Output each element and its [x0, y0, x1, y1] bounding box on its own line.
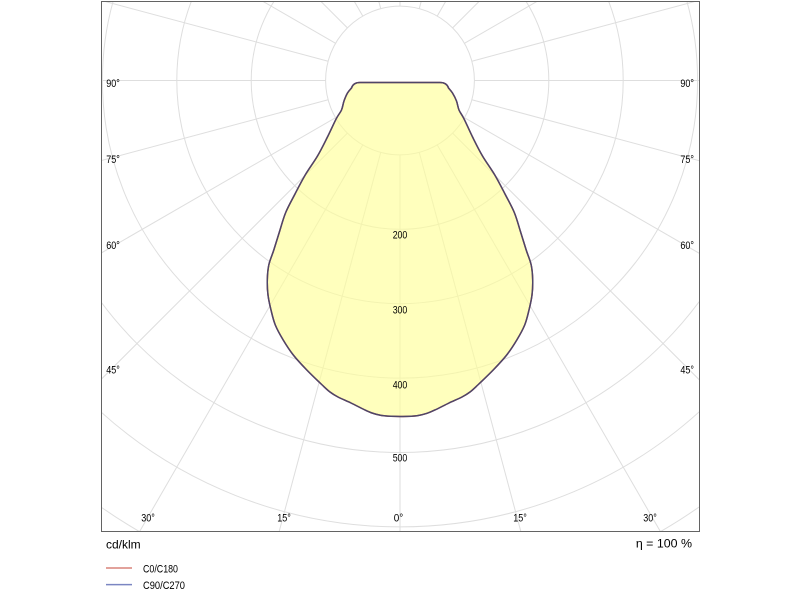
svg-text:cd/klm: cd/klm — [106, 538, 141, 552]
svg-text:200: 200 — [393, 230, 408, 242]
svg-text:90°: 90° — [680, 78, 694, 90]
svg-text:400: 400 — [393, 380, 408, 392]
svg-text:30°: 30° — [643, 512, 657, 524]
svg-text:30°: 30° — [141, 512, 155, 524]
svg-text:C0/C180: C0/C180 — [143, 564, 178, 576]
svg-text:45°: 45° — [680, 364, 694, 376]
svg-text:C90/C270: C90/C270 — [143, 580, 185, 592]
svg-text:45°: 45° — [106, 364, 120, 376]
svg-text:75°: 75° — [680, 154, 694, 166]
svg-text:90°: 90° — [106, 78, 120, 90]
svg-text:0°: 0° — [394, 512, 404, 524]
svg-text:60°: 60° — [106, 240, 120, 252]
svg-text:500: 500 — [393, 453, 408, 465]
svg-text:15°: 15° — [277, 512, 291, 524]
svg-text:300: 300 — [393, 305, 408, 317]
svg-text:75°: 75° — [106, 154, 120, 166]
svg-text:15°: 15° — [513, 512, 527, 524]
svg-text:60°: 60° — [680, 240, 694, 252]
svg-text:η = 100 %: η = 100 % — [636, 537, 692, 551]
